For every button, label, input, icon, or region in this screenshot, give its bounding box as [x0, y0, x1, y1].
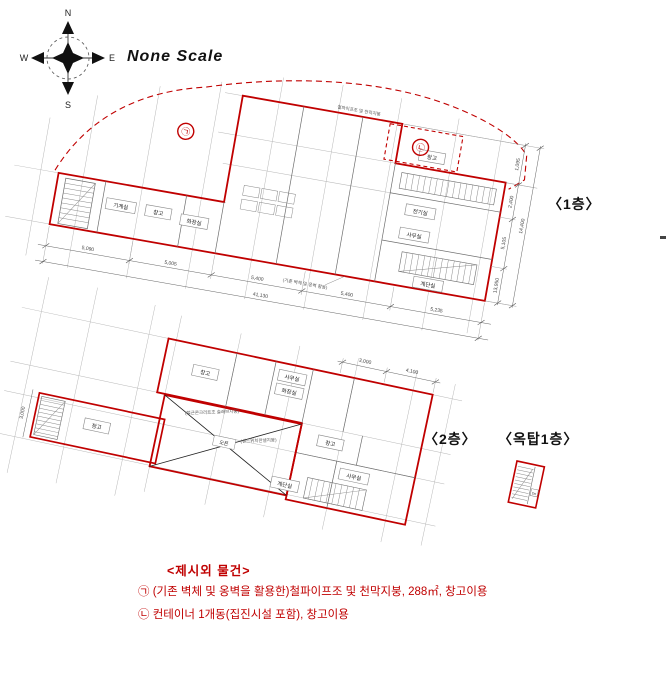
floor2-dim-left: 3,000 [15, 388, 33, 438]
marker-a: ㉠ [176, 122, 195, 141]
floor2-plan: 창고 오픈 창고 사무실 화장실 [0, 273, 469, 562]
floor1-title: 〈1층〉 [548, 194, 601, 214]
dim-label: 5,400 [251, 275, 265, 283]
dim-label: 3,000 [19, 406, 28, 420]
dim-label: 4,100 [405, 368, 419, 377]
dim-label: 5,090 [81, 245, 95, 253]
compass-label-e: E [109, 53, 115, 63]
compass-arrow-east-icon [92, 52, 105, 64]
floor2-note-1: (철근콘크리트조 슬래브지붕) [185, 408, 240, 417]
rooftop-plan: Dn [508, 461, 544, 508]
grid-lines [0, 31, 545, 345]
floor2-title: 〈2층〉 [424, 429, 477, 449]
floor1-room-labels [101, 97, 466, 292]
grid-lines [0, 273, 469, 562]
stair-treads [34, 396, 66, 439]
compass-rose: N S W E [20, 8, 115, 110]
drawing-sheet: N S W E [0, 0, 668, 700]
compass-arrow-west-icon [31, 52, 44, 64]
notes-line-b: ㉡ 컨테이너 1개동(집진시설 포함), 창고이용 [138, 606, 349, 622]
site-boundary-dashed [55, 34, 536, 251]
floor2-dims-top: 3,000 4,100 [335, 353, 442, 393]
compass-label-w: W [20, 53, 29, 63]
dim-label: 5,005 [164, 260, 178, 268]
compass-star-icon [52, 42, 84, 74]
floor2-note-2: (샌드위치판넬지붕) [240, 436, 277, 444]
notes-title: <제시외 물건> [167, 560, 251, 579]
marker-a-glyph: ㉠ [180, 126, 191, 137]
dim-label: 5,105 [500, 236, 508, 250]
floor1-stair-left [58, 178, 96, 229]
scale-title: None Scale [127, 48, 223, 66]
dim-label: 1,095 [514, 158, 522, 172]
compass-label-n: N [65, 8, 72, 18]
dim-label: 5,400 [340, 291, 354, 299]
floor1-equipment-band [399, 172, 496, 204]
floor2-left-building: 창고 [30, 393, 165, 464]
compass-arrow-north-icon [62, 21, 74, 34]
floor1-plan: 기계실 창고 화장실 창고 전기실 사무실 계단실 ㉠ ㉡ 철파이프조 및 천막… [0, 27, 550, 347]
stair-treads [58, 178, 96, 229]
dim-label: 2,400 [507, 195, 515, 209]
floor1-building-outline [50, 67, 513, 301]
edge-mark [660, 236, 666, 239]
dim-label: 5,235 [430, 307, 444, 315]
notes-line-a: ㉠ (기존 벽체 및 옹벽을 활용한)철파이프조 및 천막지붕, 288㎡, 창… [138, 583, 488, 599]
rooftop-title: 〈옥탑1층〉 [498, 429, 578, 449]
floor1-note-bottom: (기존 벽체 및 옹벽 활용) [282, 276, 328, 291]
dim-label: 3,000 [358, 358, 372, 367]
marker-b-glyph: ㉡ [415, 142, 426, 153]
compass-label-s: S [65, 100, 71, 110]
floor2-building-outline [141, 338, 433, 524]
compass-arrow-south-icon [62, 82, 74, 95]
floor1-stair-right [399, 252, 477, 285]
